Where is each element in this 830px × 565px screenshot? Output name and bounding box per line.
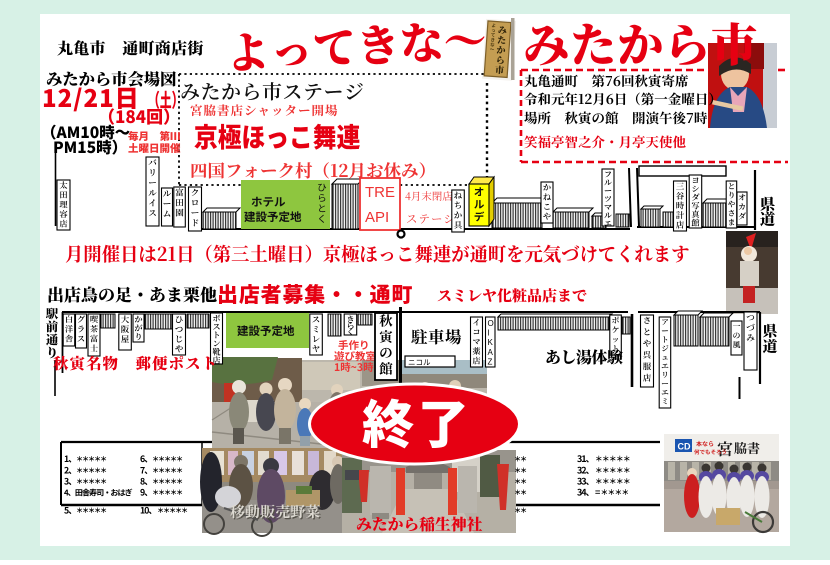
svg-text:Z: Z xyxy=(488,357,493,366)
svg-text:A: A xyxy=(488,348,494,357)
svg-text:TRE: TRE xyxy=(365,184,395,201)
svg-text:I: I xyxy=(488,329,490,338)
svg-text:K: K xyxy=(488,338,494,347)
svg-text:CD: CD xyxy=(678,442,691,452)
svg-text:API: API xyxy=(365,209,389,226)
svg-text:O: O xyxy=(488,319,494,328)
